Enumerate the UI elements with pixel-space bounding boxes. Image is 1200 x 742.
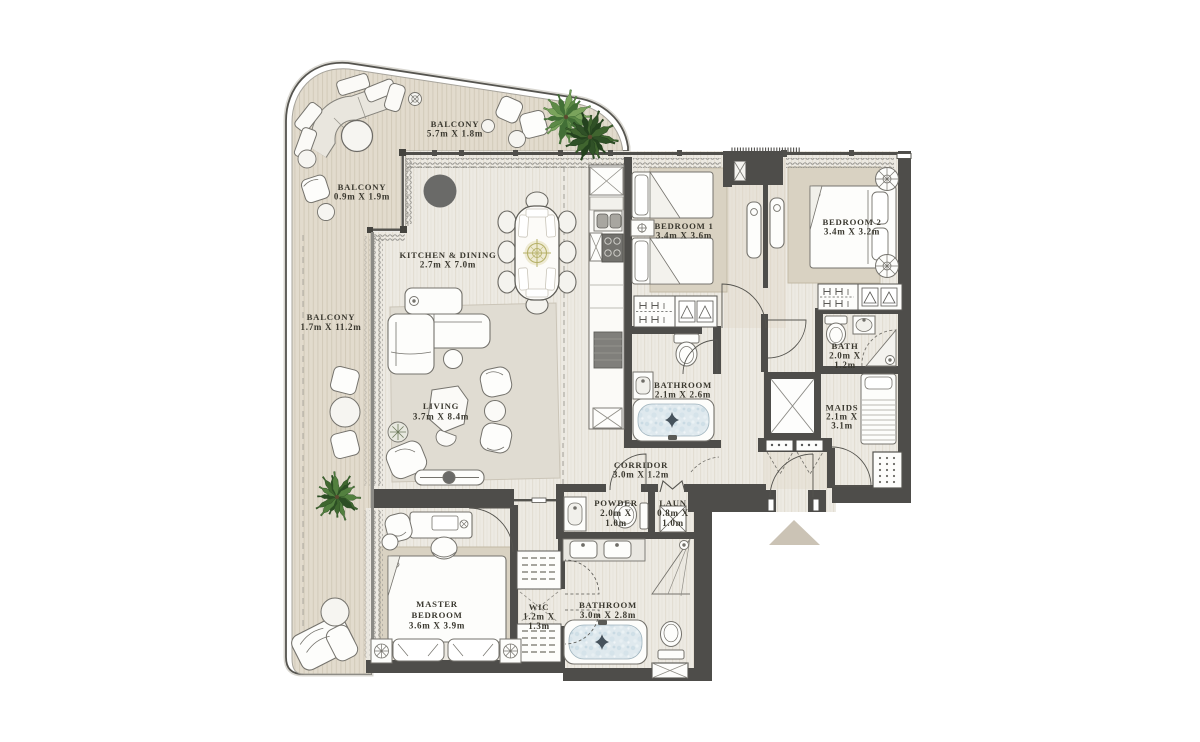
- svg-text:2.7m X 7.0m: 2.7m X 7.0m: [420, 260, 476, 270]
- svg-text:BATHROOM: BATHROOM: [654, 380, 712, 390]
- svg-text:BATHROOM: BATHROOM: [579, 600, 637, 610]
- svg-text:CORRIDOR: CORRIDOR: [614, 460, 668, 470]
- svg-text:1.2m X: 1.2m X: [523, 612, 555, 622]
- svg-text:3.7m X 8.4m: 3.7m X 8.4m: [413, 412, 469, 422]
- svg-text:3.4m X 3.6m: 3.4m X 3.6m: [656, 231, 712, 241]
- svg-text:1.3m: 1.3m: [528, 621, 550, 631]
- svg-text:3.0m X 2.8m: 3.0m X 2.8m: [580, 610, 636, 620]
- svg-text:1.2m: 1.2m: [834, 360, 856, 370]
- svg-text:3.0m X 1.2m: 3.0m X 1.2m: [613, 470, 669, 480]
- svg-text:BALCONY: BALCONY: [338, 182, 387, 192]
- svg-text:3.1m: 3.1m: [831, 421, 853, 431]
- svg-text:2.1m X 2.6m: 2.1m X 2.6m: [655, 390, 711, 400]
- svg-text:1.0m: 1.0m: [662, 518, 684, 528]
- svg-text:POWDER: POWDER: [594, 498, 638, 508]
- svg-text:3.6m X 3.9m: 3.6m X 3.9m: [409, 621, 465, 631]
- svg-text:MASTER: MASTER: [416, 599, 458, 609]
- svg-text:BALCONY: BALCONY: [431, 119, 480, 129]
- svg-text:3.4m X 3.2m: 3.4m X 3.2m: [824, 227, 880, 237]
- svg-text:BALCONY: BALCONY: [307, 312, 356, 322]
- svg-text:BATH: BATH: [832, 341, 859, 351]
- svg-text:2.0m X: 2.0m X: [600, 508, 632, 518]
- svg-text:BEDROOM 2: BEDROOM 2: [822, 217, 881, 227]
- svg-text:5.7m X 1.8m: 5.7m X 1.8m: [427, 129, 483, 139]
- svg-text:BEDROOM 1: BEDROOM 1: [654, 221, 713, 231]
- svg-text:0.8m X: 0.8m X: [657, 508, 689, 518]
- svg-text:1.0m: 1.0m: [605, 518, 627, 528]
- svg-text:0.9m X 1.9m: 0.9m X 1.9m: [334, 192, 390, 202]
- svg-text:KITCHEN & DINING: KITCHEN & DINING: [400, 250, 497, 260]
- svg-text:WIC: WIC: [529, 602, 550, 612]
- svg-text:LAUN: LAUN: [659, 498, 687, 508]
- svg-text:BEDROOM: BEDROOM: [411, 610, 462, 620]
- svg-text:LIVING: LIVING: [423, 401, 459, 411]
- svg-text:2.0m X: 2.0m X: [829, 351, 861, 361]
- svg-text:1.7m X 11.2m: 1.7m X 11.2m: [301, 322, 362, 332]
